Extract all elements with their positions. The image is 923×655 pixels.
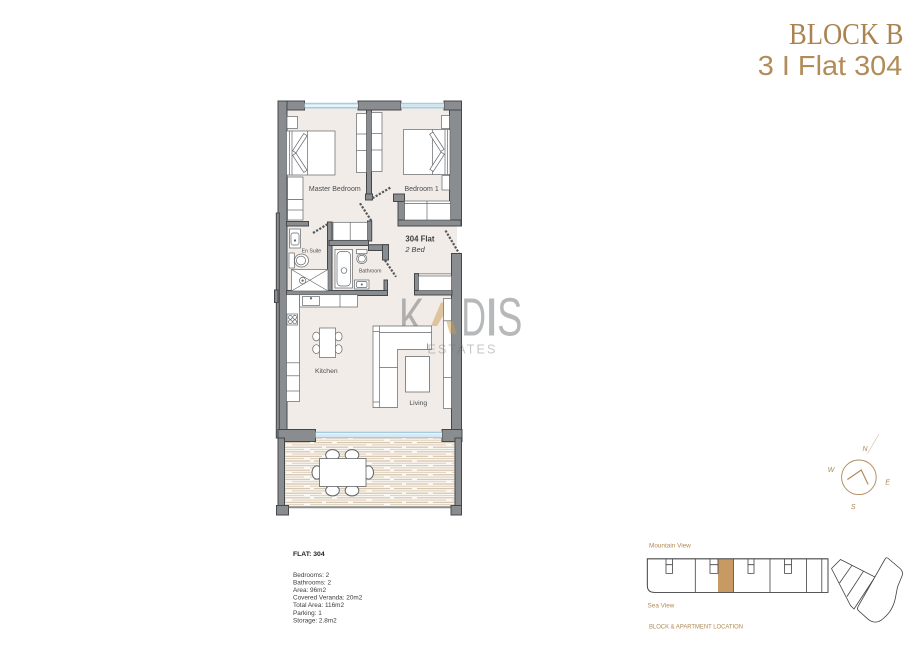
svg-text:E: E bbox=[885, 480, 890, 487]
svg-text:D: D bbox=[461, 287, 486, 347]
svg-text:BLOCK B: BLOCK B bbox=[789, 16, 904, 51]
svg-text:Storage: 2.8m2: Storage: 2.8m2 bbox=[293, 617, 337, 624]
svg-text:3 I Flat 304: 3 I Flat 304 bbox=[758, 50, 903, 81]
svg-text:En Suite: En Suite bbox=[302, 248, 322, 254]
svg-text:Bathrooms: 2: Bathrooms: 2 bbox=[293, 579, 331, 586]
svg-text:ESTATES: ESTATES bbox=[428, 343, 498, 357]
svg-text:Bedrooms: 2: Bedrooms: 2 bbox=[293, 572, 330, 579]
svg-text:Mountain View: Mountain View bbox=[649, 542, 691, 549]
svg-text:Area: 96m2: Area: 96m2 bbox=[293, 587, 326, 594]
svg-text:304 Flat: 304 Flat bbox=[405, 235, 434, 244]
svg-text:Living: Living bbox=[409, 400, 427, 407]
svg-text:Master Bedroom: Master Bedroom bbox=[309, 186, 361, 193]
svg-text:S: S bbox=[497, 287, 522, 347]
svg-text:Sea View: Sea View bbox=[648, 603, 675, 610]
svg-text:Bathroom: Bathroom bbox=[359, 269, 382, 275]
svg-text:S: S bbox=[851, 504, 856, 511]
svg-text:Kitchen: Kitchen bbox=[315, 368, 338, 375]
svg-text:Covered Veranda: 20m2: Covered Veranda: 20m2 bbox=[293, 595, 363, 602]
svg-text:2 Bed: 2 Bed bbox=[404, 245, 425, 254]
svg-text:BLOCK & APARTMENT LOCATION: BLOCK & APARTMENT LOCATION bbox=[649, 623, 743, 630]
svg-text:N: N bbox=[862, 446, 868, 453]
svg-text:Bedroom 1: Bedroom 1 bbox=[404, 186, 438, 193]
svg-text:W: W bbox=[828, 467, 836, 474]
svg-text:FLAT: 304: FLAT: 304 bbox=[293, 551, 325, 558]
svg-text:Parking: 1: Parking: 1 bbox=[293, 610, 322, 617]
svg-text:Total Area: 116m2: Total Area: 116m2 bbox=[293, 602, 344, 609]
